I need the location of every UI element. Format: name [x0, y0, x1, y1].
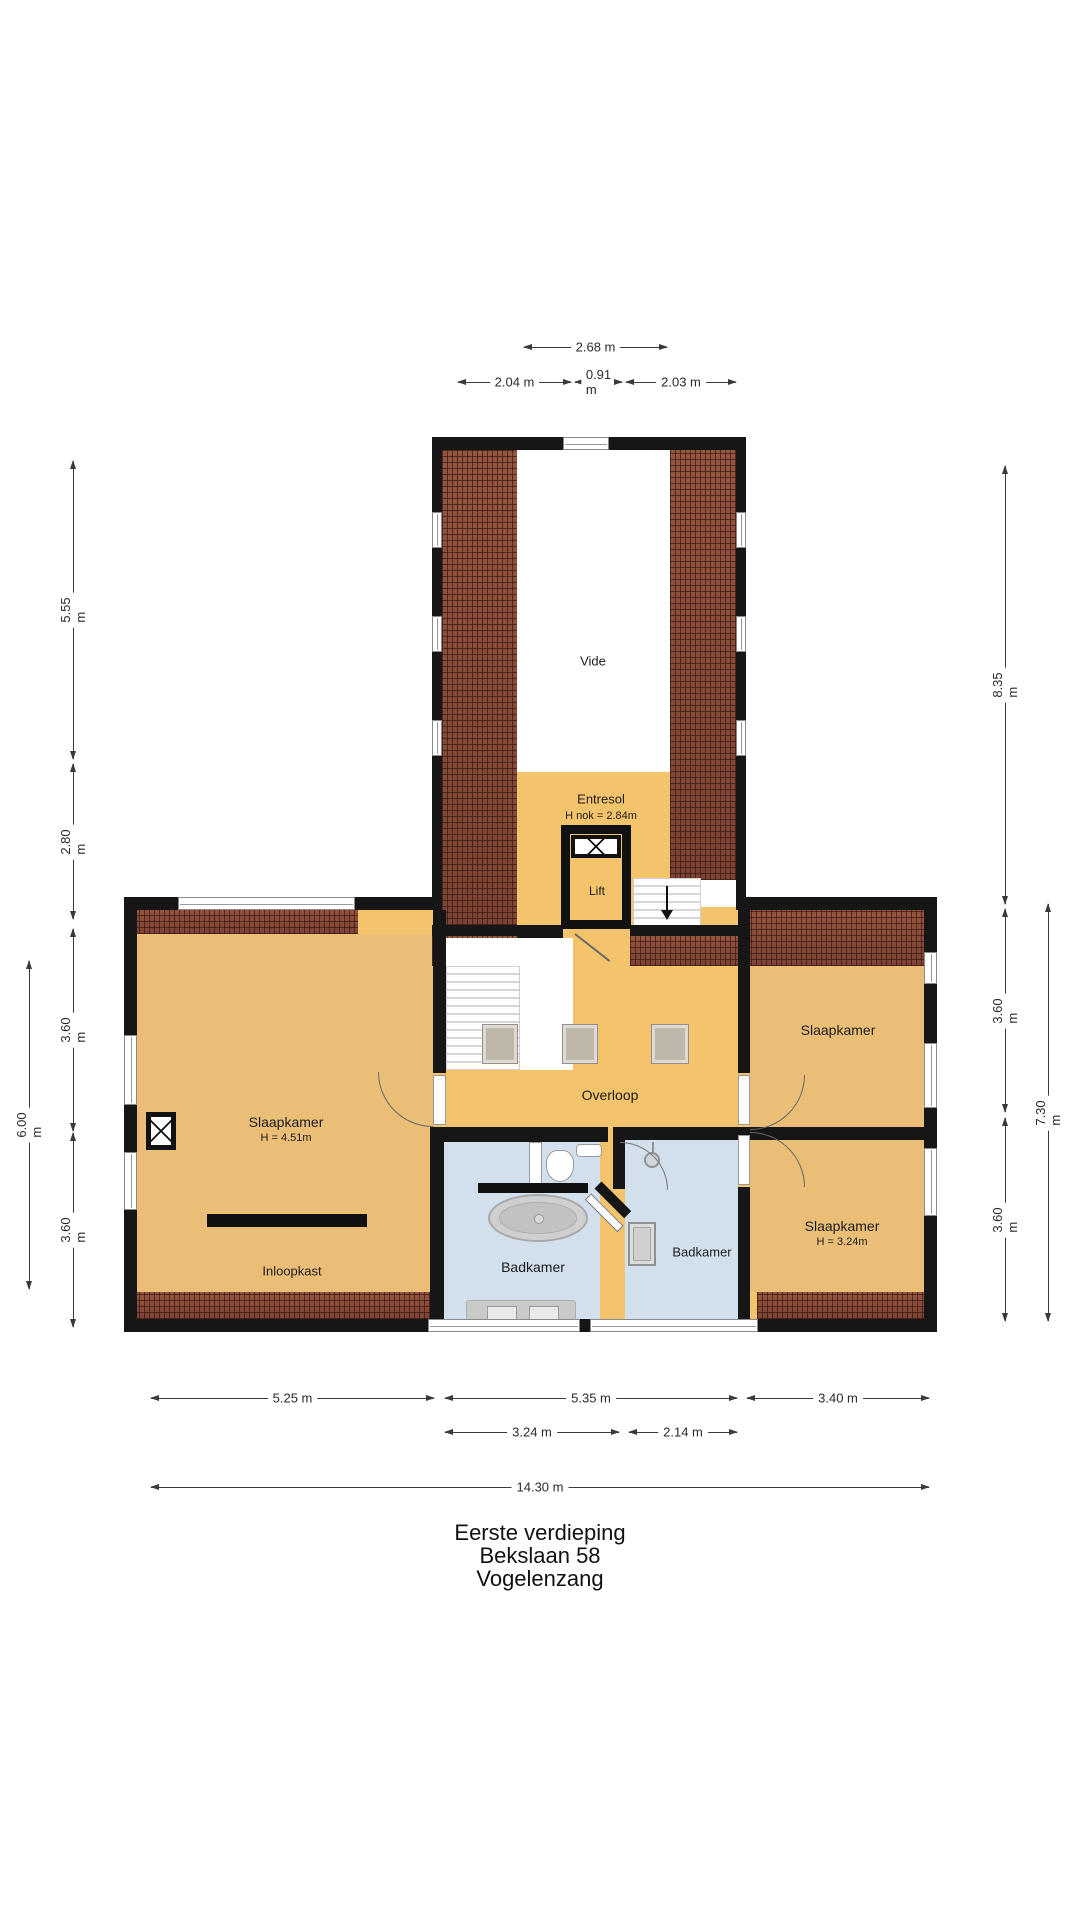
floor-bedroom-left [137, 934, 433, 1292]
wall-tower-right [736, 437, 746, 910]
roof-brick-bottom-left [134, 1292, 437, 1319]
wall-right-vertical-stub [738, 1127, 750, 1135]
window [924, 1148, 937, 1216]
room-label-slaapkamer-right-top: Slaapkamer [801, 1022, 876, 1038]
roof-brick-tower-left [442, 450, 517, 925]
wall-right-horizontal [750, 1127, 937, 1140]
plan-title: Eerste verdieping Bekslaan 58 Vogelenzan… [0, 1521, 1080, 1590]
lift-cross-icon [571, 835, 621, 858]
wall-right-vertical-bottom [738, 1187, 750, 1319]
wall-bath-top [430, 1127, 608, 1142]
room-label-badkamer-center: Badkamer [501, 1259, 565, 1275]
bathtub-icon [488, 1194, 588, 1242]
stairs-down-arrow-icon [661, 910, 673, 920]
dim-top-total: 2.68 m [523, 340, 668, 354]
lift-shaft [561, 825, 631, 929]
window [736, 512, 746, 548]
room-label-lift: Lift [589, 884, 605, 898]
dim-right-upper: 3.60 m [998, 908, 1012, 1113]
room-sublabel-entresol: H nok = 2.84m [565, 810, 637, 822]
bath-wall-bar [478, 1183, 588, 1193]
dim-bottom-total: 14.30 m [150, 1480, 930, 1494]
dim-bottom-left: 5.25 m [150, 1391, 435, 1405]
room-label-badkamer-right: Badkamer [672, 1245, 731, 1260]
window [924, 1043, 937, 1108]
toilet-cistern [576, 1144, 602, 1157]
room-label-slaapkamer-left: Slaapkamer [249, 1114, 324, 1130]
title-address: Bekslaan 58 [0, 1544, 1080, 1567]
roof-brick-mid-right [630, 936, 746, 966]
door-jamb [738, 1075, 750, 1125]
room-label-slaapkamer-right-bottom: Slaapkamer [805, 1218, 880, 1234]
roof-brick-top-right [746, 910, 927, 966]
toilet-icon [546, 1150, 574, 1182]
window [432, 512, 442, 548]
dim-top-a: 2.04 m [457, 375, 572, 389]
door-jamb [433, 1075, 446, 1125]
dim-right-tower: 8.35 m [998, 465, 1012, 905]
wall-main-top-right [736, 897, 937, 910]
dim-bottom-center: 5.35 m [444, 1391, 738, 1405]
window [178, 897, 355, 910]
dim-top-b: 0.91 m [574, 375, 623, 389]
stairwell-tower [633, 878, 701, 926]
floorplan-canvas: Vide Entresol H nok = 2.84m Lift Overloo… [0, 0, 1080, 1920]
window [736, 616, 746, 652]
wall-bathroom-right-top [613, 1127, 738, 1140]
roof-window-box [563, 1025, 597, 1063]
wall-main-left [124, 897, 137, 1332]
dim-top-c: 2.03 m [625, 375, 737, 389]
door-jamb [738, 1135, 750, 1185]
bathtub-drain [534, 1214, 544, 1224]
dim-bottom-center-b: 2.14 m [628, 1425, 738, 1439]
dim-left-lower: 3.60 m [66, 1132, 80, 1328]
room-label-overloop: Overloop [582, 1087, 639, 1103]
wall-tower-left [432, 437, 442, 910]
window [590, 1319, 758, 1332]
roof-window-box [652, 1025, 688, 1063]
closet-bar [207, 1214, 367, 1227]
room-label-entresol: Entresol [577, 792, 625, 807]
window [736, 720, 746, 756]
shaft-cross-icon [146, 1112, 176, 1150]
room-sublabel-slaapkamer-right-bottom: H = 3.24m [816, 1236, 867, 1248]
dim-right-lower: 3.60 m [998, 1117, 1012, 1322]
room-label-vide: Vide [580, 654, 606, 669]
wall-stairwell-left [433, 910, 446, 1073]
dim-left-total: 6.00 m [22, 960, 36, 1290]
roof-brick-bottom-right [757, 1292, 927, 1319]
window [428, 1319, 580, 1332]
stairs-arrow-stem [666, 886, 668, 910]
window [563, 437, 609, 450]
sink-icon [628, 1222, 656, 1266]
dim-bottom-right: 3.40 m [746, 1391, 930, 1405]
sink-basin [633, 1227, 651, 1261]
room-label-inloopkast: Inloopkast [262, 1264, 321, 1279]
title-city: Vogelenzang [0, 1567, 1080, 1590]
roof-brick-tower-right [670, 450, 736, 880]
wall-stub-right [630, 925, 746, 936]
wall-bath-left [430, 1127, 444, 1319]
window [432, 720, 442, 756]
roof-brick-top-left [134, 907, 358, 934]
wall-right-vertical-top [738, 910, 750, 1073]
dim-left-tower: 5.55 m [66, 460, 80, 760]
title-floor: Eerste verdieping [0, 1521, 1080, 1544]
window [124, 1152, 137, 1210]
dim-right-total: 7.30 m [1041, 903, 1055, 1322]
wall-entresol-bottom [517, 925, 563, 938]
room-sublabel-slaapkamer-left: H = 4.51m [260, 1132, 311, 1144]
window [124, 1035, 137, 1105]
dim-left-upper: 3.60 m [66, 928, 80, 1132]
window [924, 952, 937, 984]
window [432, 616, 442, 652]
floor-vide [517, 450, 670, 772]
roof-window-box [483, 1025, 517, 1063]
dim-bottom-center-a: 3.24 m [444, 1425, 620, 1439]
dim-left-entresol: 2.80 m [66, 763, 80, 920]
